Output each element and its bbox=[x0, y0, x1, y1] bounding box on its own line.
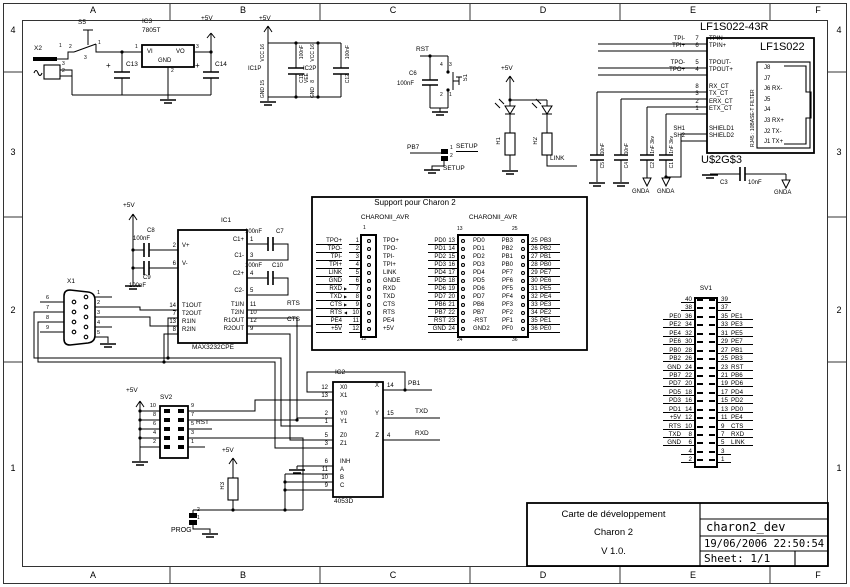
cap-labels: 10nFC5 bbox=[600, 0, 610, 190]
net-label: TPI- bbox=[316, 254, 342, 261]
sv1-connector: 40393837PE03635PE1PE23433PE3PE43231PE5PE… bbox=[663, 296, 753, 465]
net-label: PB0 bbox=[540, 262, 560, 269]
net-label: +5V bbox=[663, 414, 681, 421]
net-label: PD0 bbox=[731, 406, 753, 413]
connector-row: 43 bbox=[663, 448, 753, 456]
pin-row: R1OUT12 bbox=[200, 318, 300, 326]
net-label: PD2 bbox=[731, 397, 753, 404]
pin-contact bbox=[457, 246, 469, 254]
pin-marks bbox=[694, 380, 718, 388]
frame-ref: F bbox=[808, 5, 828, 15]
pin-name: GND bbox=[311, 87, 316, 98]
pin-name: X0 bbox=[340, 385, 347, 392]
connector-row: PD72019PD6 bbox=[663, 380, 753, 388]
plus5v-label: +5V bbox=[222, 448, 234, 455]
jack-pin-label: J6 RX- bbox=[764, 85, 784, 96]
pin-number: 14 bbox=[446, 246, 457, 253]
ic3-pin-name: VO bbox=[176, 49, 185, 55]
pin-name: GNDE bbox=[377, 278, 400, 286]
connector-row: TXD87RXD bbox=[663, 431, 753, 439]
direction-arrow bbox=[342, 278, 349, 285]
pin-number: 1 bbox=[363, 226, 366, 231]
net-label: PE6 bbox=[540, 278, 560, 285]
pin-name: VEE bbox=[305, 73, 310, 83]
net-label: RTS bbox=[316, 310, 342, 317]
support-title: Support pour Charon 2 bbox=[340, 199, 490, 207]
pin-number: 28 bbox=[529, 262, 540, 269]
setup-label: SETUP bbox=[443, 166, 465, 173]
frame-ref: D bbox=[533, 570, 553, 580]
pin-number: 6 bbox=[162, 261, 176, 268]
pin-name: TPO+ bbox=[377, 238, 399, 246]
pin-name: +5V bbox=[377, 326, 394, 334]
pin-number: 7 bbox=[191, 412, 194, 421]
pin-number: 14 bbox=[681, 406, 694, 413]
pin-number: 9 bbox=[46, 325, 49, 335]
pin-number: 28 bbox=[681, 347, 694, 354]
net-label: RXD bbox=[316, 286, 342, 293]
pin-contact bbox=[517, 318, 529, 326]
lf-pin-row: 1ETX_CT bbox=[645, 106, 763, 114]
connector-row: RTS◀10RTS bbox=[316, 310, 400, 318]
pin-row: C2-5 bbox=[200, 288, 300, 296]
connector-row: PD417PD4PF729PE7 bbox=[428, 270, 560, 278]
frame-ref: 1 bbox=[7, 463, 19, 473]
titleblock-version: V 1.0. bbox=[527, 546, 700, 557]
pin-number: 1 bbox=[191, 439, 194, 448]
net-label: PE0 bbox=[540, 326, 560, 333]
net-label: PD3 bbox=[428, 262, 446, 269]
direction-arrow bbox=[342, 326, 349, 333]
net-label: PE1 bbox=[731, 313, 753, 320]
net-label: PD6 bbox=[731, 380, 753, 387]
pin-number: 4 bbox=[97, 320, 100, 330]
pin-contact bbox=[517, 278, 529, 286]
pin-number: 10 bbox=[349, 310, 361, 317]
pin-number: 7 bbox=[46, 305, 49, 315]
lf-pin-row: TPO+4TPOUT+ bbox=[645, 67, 763, 75]
pin-number: 3 bbox=[196, 45, 199, 50]
pin-contact bbox=[517, 310, 529, 318]
pin-marks bbox=[694, 347, 718, 355]
rst-net-label: RST bbox=[416, 47, 429, 54]
pin-number: 36 bbox=[681, 313, 694, 320]
pin-name: PF2 bbox=[493, 310, 517, 318]
link-net-label: LINK bbox=[550, 156, 564, 163]
pin-number: 38 bbox=[681, 304, 694, 311]
net-label: PE5 bbox=[540, 286, 560, 293]
pin-number: 33 bbox=[529, 302, 540, 309]
net-label bbox=[663, 296, 681, 303]
pin-number: 8 bbox=[681, 431, 694, 438]
pin-number: 1 bbox=[135, 45, 138, 50]
plus5v-label: +5V bbox=[201, 16, 213, 23]
pin-number: 5 bbox=[312, 433, 328, 440]
net-label bbox=[731, 304, 753, 311]
connector-row: PB02827PB1 bbox=[663, 347, 753, 355]
c10-value: 100nF bbox=[245, 263, 262, 269]
pin-number: 18 bbox=[446, 278, 457, 285]
pin-name: SHIELD2 bbox=[709, 133, 734, 140]
c6-value: 100nF bbox=[397, 81, 414, 87]
c3-value: 10nF bbox=[748, 180, 762, 186]
pin-name: R1OUT bbox=[200, 318, 244, 325]
polarity-plus: + bbox=[195, 62, 200, 70]
pin-name: Z1 bbox=[340, 441, 347, 448]
schematic-sheet: ABCDEF ABCDEF 4321 4321 X2 1 3 2 S5 2 1 … bbox=[0, 0, 850, 587]
pin-name: PF1 bbox=[493, 318, 517, 326]
pin-contact bbox=[457, 302, 469, 310]
pin-name: PB3 bbox=[493, 238, 517, 246]
titleblock-line1: Carte de développement bbox=[527, 509, 700, 520]
c11-ref: C11 bbox=[300, 74, 305, 83]
pin-number: 1 bbox=[98, 41, 101, 46]
charonii-avr-title: CHARONII_AVR bbox=[340, 215, 430, 222]
connector-row: RTS109CTS bbox=[663, 423, 753, 431]
frame-ref: F bbox=[808, 570, 828, 580]
pin-number: 5 bbox=[718, 439, 731, 446]
pin-number: 3 bbox=[191, 430, 194, 439]
pin-number: 25 bbox=[529, 238, 540, 245]
net-label: TPI+ bbox=[316, 262, 342, 269]
pin-number: 23 bbox=[446, 318, 457, 325]
pin-name: T1OUT bbox=[182, 303, 202, 310]
pin-marks bbox=[694, 338, 718, 346]
net-label: PB1 bbox=[731, 347, 753, 354]
pin-contact bbox=[361, 326, 377, 334]
connector-row: PB621PB6PF333PE3 bbox=[428, 302, 560, 310]
pin-marks bbox=[694, 406, 718, 414]
pin-number: 24 bbox=[681, 364, 694, 371]
pin-name: PD3 bbox=[469, 262, 493, 270]
pb7-net-label: PB7 bbox=[407, 145, 419, 152]
pin-row: 13X1 bbox=[300, 393, 400, 401]
connector-row: +5V12+5V bbox=[316, 326, 400, 334]
pin-number: 9 bbox=[349, 302, 361, 309]
direction-arrow: ◀ bbox=[342, 310, 349, 317]
connector-row: LINK5LINK bbox=[316, 270, 400, 278]
plus5v-label: +5V bbox=[126, 388, 138, 395]
pin-contact bbox=[457, 286, 469, 294]
net-label: TPO+ bbox=[316, 238, 342, 245]
connector-row: RST23-RSTPF135PE1 bbox=[428, 318, 560, 326]
frame-ref: E bbox=[683, 570, 703, 580]
net-label: TXD bbox=[663, 431, 681, 438]
pin-number: 22 bbox=[681, 372, 694, 379]
pin-contact bbox=[361, 318, 377, 326]
pin-number: 35 bbox=[529, 318, 540, 325]
x1-right-pins: 12345 bbox=[97, 290, 100, 340]
pin-name: PF3 bbox=[493, 302, 517, 310]
connector-row: PD114PD1PB226PB2 bbox=[428, 246, 560, 254]
net-label: TXD bbox=[316, 294, 342, 301]
pin-number: 25 bbox=[718, 355, 731, 362]
pin-marks bbox=[694, 414, 718, 422]
pin-name: RTS bbox=[377, 310, 395, 318]
pin-number: 2 bbox=[312, 411, 328, 418]
frame-ref: 4 bbox=[7, 25, 19, 35]
pin-contact bbox=[457, 294, 469, 302]
pin-number: 4 bbox=[681, 448, 694, 455]
pin-name: R2IN bbox=[182, 327, 196, 334]
pin-name: PD7 bbox=[469, 294, 493, 302]
net-label: PD4 bbox=[731, 389, 753, 396]
pin-name: PD5 bbox=[469, 278, 493, 286]
pin-row: T1IN11 bbox=[200, 302, 300, 310]
pin-contact bbox=[457, 238, 469, 246]
pin-number: 2 bbox=[62, 69, 65, 74]
pin-number: 10 bbox=[681, 423, 694, 430]
pin-number: 7 bbox=[162, 311, 176, 318]
pin-number: 14 bbox=[162, 303, 176, 310]
connector-row: GND24GND2PF036PE0 bbox=[428, 326, 560, 334]
c13-ref: C13 bbox=[126, 62, 138, 69]
pin-number: 9 bbox=[312, 483, 328, 490]
pin-number: 27 bbox=[718, 347, 731, 354]
c8-ref: C8 bbox=[147, 228, 155, 234]
cap-ref: C2 bbox=[650, 162, 656, 168]
net-label: PE3 bbox=[540, 302, 560, 309]
pin-number: 5 bbox=[97, 330, 100, 340]
frame-ref: D bbox=[533, 5, 553, 15]
pin-number: 3 bbox=[84, 56, 87, 61]
pin-number: 1 bbox=[349, 238, 361, 245]
net-label: PB6 bbox=[731, 372, 753, 379]
c14-ref: C14 bbox=[215, 62, 227, 69]
connector-row: PB22625PB3 bbox=[663, 355, 753, 363]
connector-row: 4039 bbox=[663, 296, 753, 304]
pin-number: 2 bbox=[689, 99, 705, 106]
prog-label: PROG bbox=[171, 527, 192, 534]
net-label: PE4 bbox=[540, 294, 560, 301]
pin-number: 21 bbox=[446, 302, 457, 309]
pin-name: RX_CT bbox=[709, 84, 729, 91]
c12-ref: C12 bbox=[346, 74, 351, 83]
cap-ref: C5 bbox=[600, 162, 606, 168]
pin-number: 6 bbox=[681, 439, 694, 446]
pin-contact bbox=[517, 326, 529, 334]
pin-row: 3Z1 bbox=[300, 441, 400, 449]
net-label: LINK bbox=[316, 270, 342, 277]
jack-pin-label: J3 RX+ bbox=[764, 117, 784, 128]
sv2-right-pins: 97531 bbox=[191, 403, 194, 448]
connector-row: GND2423RST bbox=[663, 364, 753, 372]
pin-number: 13 bbox=[718, 406, 731, 413]
s1-ref: S1 bbox=[463, 74, 469, 81]
net-label: PD4 bbox=[428, 270, 446, 277]
net-label: PE4 bbox=[316, 318, 342, 325]
pin-name: Z0 bbox=[340, 433, 347, 440]
pin-name: PF5 bbox=[493, 286, 517, 294]
connector-row: TPI+4TPI+ bbox=[316, 262, 400, 270]
pin-number: 37 bbox=[718, 304, 731, 311]
frame-ref: A bbox=[83, 5, 103, 15]
connector-row: PD518PD5PF630PE6 bbox=[428, 278, 560, 286]
pin-row: X14 bbox=[355, 383, 455, 391]
pin-marks bbox=[694, 456, 718, 464]
pin-number: 9 bbox=[191, 403, 194, 412]
ic3-pin-name: GND bbox=[158, 58, 171, 64]
pin-number: 15 bbox=[446, 254, 457, 261]
connector-row: GND65LINK bbox=[663, 439, 753, 447]
pin-number: 39 bbox=[718, 296, 731, 303]
pin-number: 22 bbox=[446, 310, 457, 317]
connector-row: 21 bbox=[663, 456, 753, 464]
pin-number: 1 bbox=[197, 516, 200, 521]
pin-name: PF7 bbox=[493, 270, 517, 278]
pin-name: PB0 bbox=[493, 262, 517, 270]
pin-number: 4 bbox=[440, 63, 443, 68]
pin-number: 23 bbox=[718, 364, 731, 371]
pin-number: 19 bbox=[718, 380, 731, 387]
pin-number: 16 bbox=[311, 44, 316, 50]
pin-marks bbox=[694, 364, 718, 372]
pin-name: X1 bbox=[340, 393, 347, 400]
net-label: PD3 bbox=[663, 397, 681, 404]
gnda-label: GNDA bbox=[657, 189, 674, 195]
pin-number: 3 bbox=[718, 448, 731, 455]
pin-name: PB7 bbox=[469, 310, 493, 318]
pin-number: 35 bbox=[718, 313, 731, 320]
pin-number: 24 bbox=[446, 326, 457, 333]
connector-row: RXD▶7RXD bbox=[316, 286, 400, 294]
pin-number: 34 bbox=[529, 310, 540, 317]
cap-labels: 1nF 3kvC1 bbox=[669, 0, 679, 190]
pin-row: 10B bbox=[300, 475, 400, 483]
pin-number: 2 bbox=[349, 246, 361, 253]
pin-name: PB6 bbox=[469, 302, 493, 310]
ic2-part: 4053D bbox=[334, 499, 353, 506]
pin-number: 21 bbox=[718, 372, 731, 379]
connector-row: PE03635PE1 bbox=[663, 313, 753, 321]
pin-number: 1 bbox=[450, 146, 453, 151]
connector-row: PD51817PD4 bbox=[663, 389, 753, 397]
net-label: PB0 bbox=[663, 347, 681, 354]
charonii-avr-a-rows: TPO+1TPO+TPO-2TPO-TPI-3TPI-TPI+4TPI+LINK… bbox=[316, 238, 400, 334]
pin-marks bbox=[694, 330, 718, 338]
net-label: GND bbox=[663, 439, 681, 446]
pin-number: 33 bbox=[718, 321, 731, 328]
net-label: PD1 bbox=[663, 406, 681, 413]
titleblock-project: charon2_dev bbox=[706, 521, 785, 533]
pin-marks bbox=[694, 448, 718, 456]
pin-name: GND bbox=[261, 87, 266, 98]
titleblock-line2: Charon 2 bbox=[527, 527, 700, 538]
pin-row: T2IN10 bbox=[200, 310, 300, 318]
pin-name: Y1 bbox=[340, 419, 347, 426]
net-label: CTS bbox=[316, 302, 342, 309]
r3-ref: R3 bbox=[220, 482, 226, 490]
pin-name: TPI+ bbox=[377, 262, 396, 270]
frame-ref: C bbox=[383, 570, 403, 580]
pin-name: X bbox=[365, 383, 383, 390]
cap-value: 1nF 3kv bbox=[669, 136, 675, 154]
jack-pin-label: J4 bbox=[764, 106, 784, 117]
cap-value: 10nF bbox=[624, 143, 630, 154]
pin-contact bbox=[457, 254, 469, 262]
jack-pin-label: J5 bbox=[764, 96, 784, 107]
net-label: +5V bbox=[316, 326, 342, 333]
pin-name: -RST bbox=[469, 318, 493, 326]
c7-ref: C7 bbox=[276, 229, 284, 235]
pin-name: T1IN bbox=[200, 302, 244, 309]
pin-number: 2 bbox=[97, 300, 100, 310]
pin-contact bbox=[517, 262, 529, 270]
pin-number: 32 bbox=[681, 330, 694, 337]
pin-marks bbox=[694, 372, 718, 380]
cap-labels: 10nFC4 bbox=[624, 0, 634, 190]
jack-pin-label: J1 TX+ bbox=[764, 138, 784, 149]
pin-number: 12 bbox=[681, 414, 694, 421]
ic3-part: 7805T bbox=[142, 28, 160, 35]
pin-row: C2+4 bbox=[200, 271, 300, 279]
pin-contact bbox=[361, 270, 377, 278]
net-label: GND bbox=[663, 364, 681, 371]
frame-ref: 3 bbox=[7, 147, 19, 157]
pin-name: TXD bbox=[377, 294, 395, 302]
net-label: PB2 bbox=[663, 355, 681, 362]
pin-contact bbox=[361, 310, 377, 318]
titleblock-sheet: Sheet: 1/1 bbox=[704, 553, 770, 564]
pin-name: RXD bbox=[377, 286, 396, 294]
pin-name: Y0 bbox=[340, 411, 347, 418]
pin-contact bbox=[361, 278, 377, 286]
pin-contact bbox=[361, 294, 377, 302]
connector-row: PB722PB7PF234PE2 bbox=[428, 310, 560, 318]
pin-contact bbox=[457, 262, 469, 270]
pin-name: PB1 bbox=[493, 254, 517, 262]
pin-number: 3 bbox=[349, 254, 361, 261]
net-label: PD0 bbox=[428, 238, 446, 245]
net-label: PE4 bbox=[663, 330, 681, 337]
gnda-label: GNDA bbox=[632, 189, 649, 195]
connector-row: PE411PE4 bbox=[316, 318, 400, 326]
pin-number: 1 bbox=[312, 419, 328, 426]
net-label: PB7 bbox=[663, 372, 681, 379]
pin-number: 29 bbox=[718, 338, 731, 345]
pin-number: 10 bbox=[144, 403, 156, 412]
pin-number: 10 bbox=[312, 475, 328, 482]
pin-name: INH bbox=[340, 459, 350, 466]
pin-number: 1 bbox=[250, 237, 266, 244]
connector-row: PD11413PD0 bbox=[663, 406, 753, 414]
pin-name: A bbox=[340, 467, 344, 474]
net-label: PE6 bbox=[663, 338, 681, 345]
net-label: PE1 bbox=[540, 318, 560, 325]
c6-ref: C6 bbox=[409, 71, 417, 77]
pin-name: T2OUT bbox=[182, 311, 202, 318]
charonii-avr-title: CHARONII_AVR bbox=[438, 215, 548, 222]
pin-contact bbox=[457, 310, 469, 318]
txd-net-label: TXD bbox=[415, 409, 428, 416]
s5-ref: S5 bbox=[78, 20, 86, 27]
ic2p-ref: IC2P bbox=[303, 66, 316, 72]
pin-row: 1Y1 bbox=[300, 419, 400, 427]
pin-number: 19 bbox=[446, 286, 457, 293]
pin-contact bbox=[517, 286, 529, 294]
connector-row: PE43231PE5 bbox=[663, 330, 753, 338]
direction-arrow: ▶ bbox=[342, 302, 349, 309]
pin-number: 9 bbox=[250, 326, 266, 333]
pin-number: 2 bbox=[162, 243, 176, 250]
pin-number: 7 bbox=[689, 36, 705, 43]
net-label: CTS bbox=[731, 423, 753, 430]
pin-row: C1-3 bbox=[200, 253, 300, 261]
pin-contact bbox=[361, 254, 377, 262]
direction-arrow bbox=[342, 246, 349, 253]
pin-number: 29 bbox=[529, 270, 540, 277]
direction-arrow bbox=[342, 270, 349, 277]
